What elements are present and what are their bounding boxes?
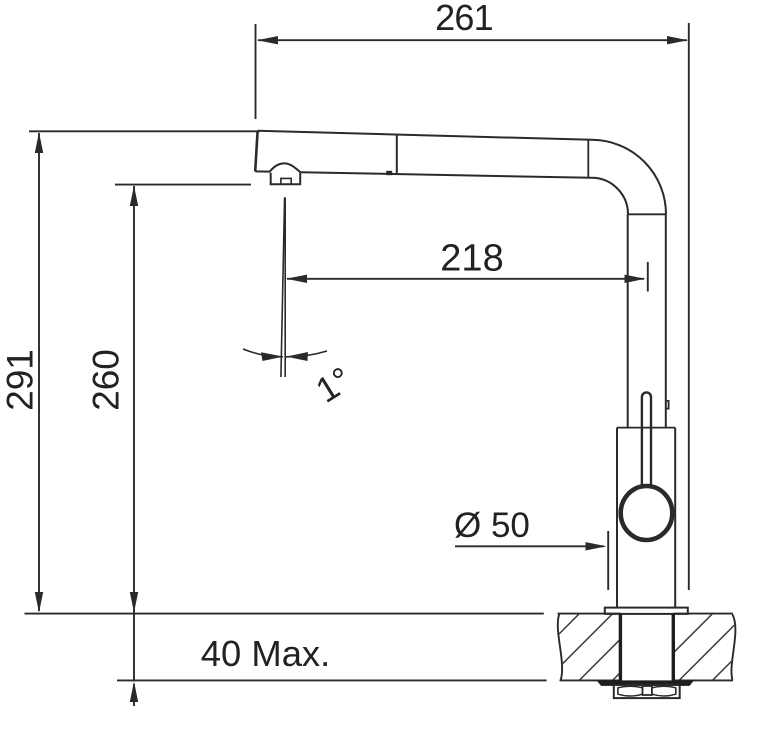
svg-text:291: 291	[0, 349, 40, 411]
svg-text:218: 218	[440, 238, 503, 280]
svg-text:40 Max.: 40 Max.	[201, 633, 330, 674]
svg-text:Ø 50: Ø 50	[454, 506, 530, 545]
svg-text:260: 260	[86, 349, 127, 411]
svg-text:1°: 1°	[309, 360, 358, 411]
svg-text:261: 261	[435, 0, 493, 38]
